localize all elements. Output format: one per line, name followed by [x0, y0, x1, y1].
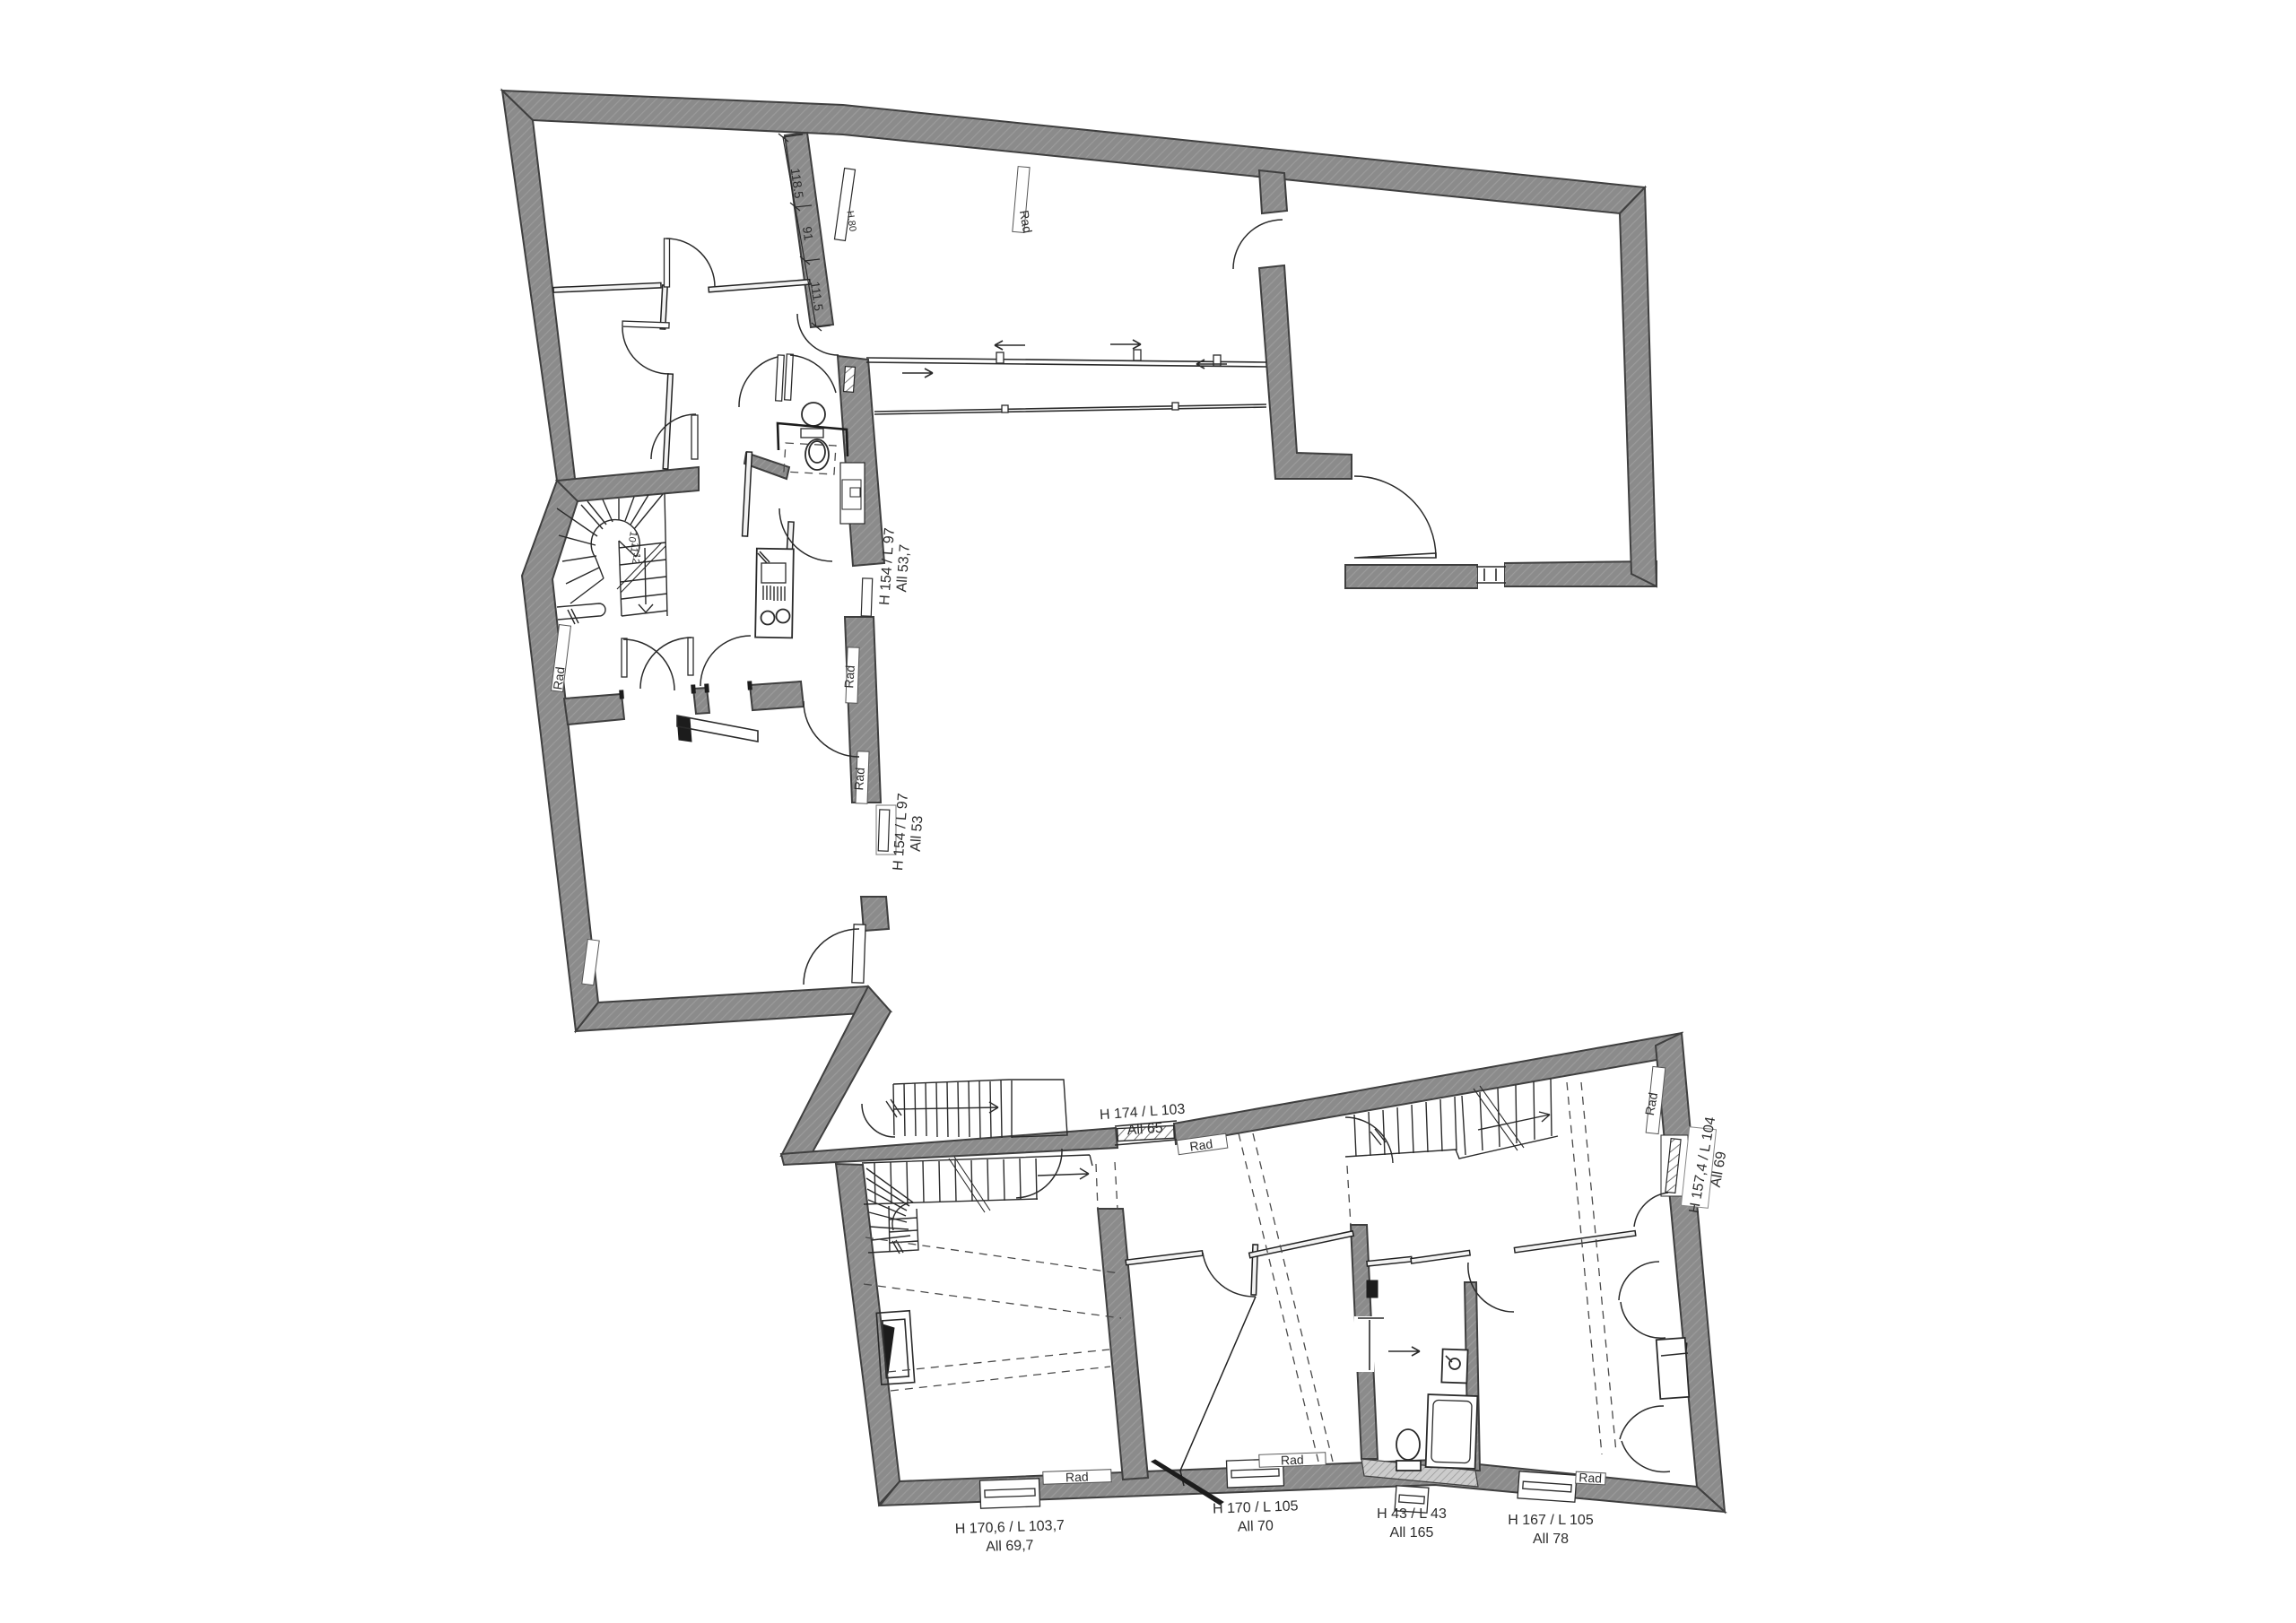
svg-text:H 43 / L 43: H 43 / L 43	[1377, 1506, 1447, 1522]
svg-text:All 69,7: All 69,7	[986, 1538, 1034, 1555]
svg-text:H 170 / L 105: H 170 / L 105	[1213, 1498, 1299, 1516]
svg-text:91: 91	[800, 225, 816, 241]
svg-text:All 70: All 70	[1238, 1518, 1274, 1534]
svg-text:H 170,6 / L 103,7: H 170,6 / L 103,7	[954, 1518, 1065, 1537]
svg-text:Rad: Rad	[1065, 1470, 1089, 1485]
svg-text:All 65: All 65	[1126, 1121, 1163, 1139]
svg-text:H 154 / L 97: H 154 / L 97	[891, 793, 911, 872]
svg-text:Rad: Rad	[1578, 1470, 1602, 1485]
svg-text:Rad: Rad	[841, 664, 857, 689]
svg-text:Rad: Rad	[551, 666, 568, 690]
svg-text:All 78: All 78	[1533, 1532, 1569, 1547]
svg-text:Rad: Rad	[1281, 1453, 1304, 1468]
svg-text:Rad: Rad	[1188, 1136, 1213, 1153]
svg-text:118.5: 118.5	[788, 167, 807, 199]
svg-text:12: 12	[630, 551, 642, 564]
svg-text:All 53: All 53	[909, 815, 926, 852]
svg-text:H 167 / L 105: H 167 / L 105	[1508, 1513, 1594, 1528]
svg-text:Rad: Rad	[851, 767, 867, 791]
svg-text:All 165: All 165	[1390, 1525, 1434, 1541]
svg-text:All 53,7: All 53,7	[894, 543, 913, 593]
svg-text:H 174 / L 103: H 174 / L 103	[1099, 1102, 1186, 1124]
